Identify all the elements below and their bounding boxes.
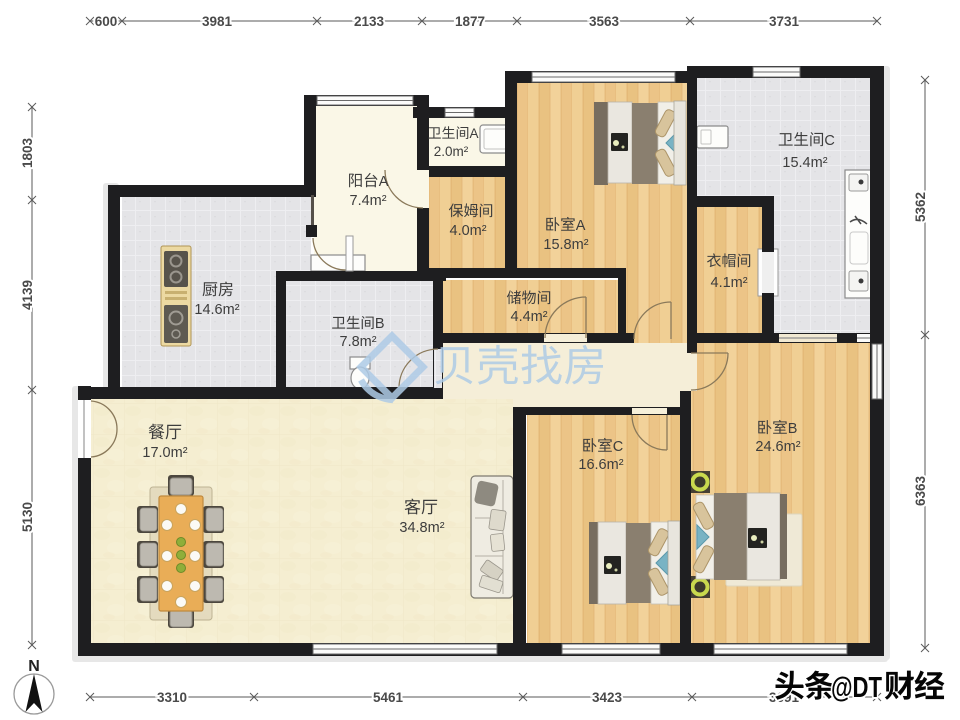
svg-text:A: A [379, 174, 389, 190]
svg-text:3423: 3423 [592, 690, 623, 705]
svg-text:C: C [613, 439, 623, 455]
svg-text:1877: 1877 [455, 14, 485, 29]
svg-text:7.8m²: 7.8m² [340, 334, 377, 350]
svg-text:5130: 5130 [20, 502, 35, 532]
svg-text:7.4m²: 7.4m² [350, 193, 387, 209]
svg-text:15.4m²: 15.4m² [782, 155, 827, 171]
svg-text:14.6m²: 14.6m² [194, 302, 239, 318]
svg-text:A: A [576, 218, 586, 234]
svg-text:B: B [375, 316, 385, 332]
svg-text:4.0m²: 4.0m² [450, 223, 487, 239]
svg-text:4.4m²: 4.4m² [511, 309, 548, 325]
svg-text:17.0m²: 17.0m² [142, 445, 187, 461]
svg-text:@DT: @DT [831, 672, 882, 704]
svg-text:4.1m²: 4.1m² [711, 275, 748, 291]
svg-text:B: B [788, 421, 798, 437]
svg-text:6363: 6363 [913, 475, 928, 506]
svg-text:3310: 3310 [157, 690, 187, 705]
svg-text:A: A [470, 126, 479, 141]
svg-text:3731: 3731 [769, 14, 800, 29]
svg-text:16.6m²: 16.6m² [578, 457, 623, 473]
svg-text:N: N [28, 658, 40, 675]
svg-text:600: 600 [95, 14, 118, 29]
svg-text:C: C [824, 133, 834, 149]
svg-text:3563: 3563 [589, 14, 620, 29]
svg-text:34.8m²: 34.8m² [399, 520, 444, 536]
svg-text:1803: 1803 [20, 137, 35, 168]
svg-text:4139: 4139 [20, 280, 35, 310]
svg-text:15.8m²: 15.8m² [543, 237, 588, 253]
svg-text:2133: 2133 [354, 14, 385, 29]
svg-text:5461: 5461 [373, 690, 404, 705]
svg-text:2.0m²: 2.0m² [434, 144, 469, 159]
svg-text:5362: 5362 [913, 192, 928, 222]
svg-text:3981: 3981 [202, 14, 233, 29]
svg-text:24.6m²: 24.6m² [755, 439, 800, 455]
